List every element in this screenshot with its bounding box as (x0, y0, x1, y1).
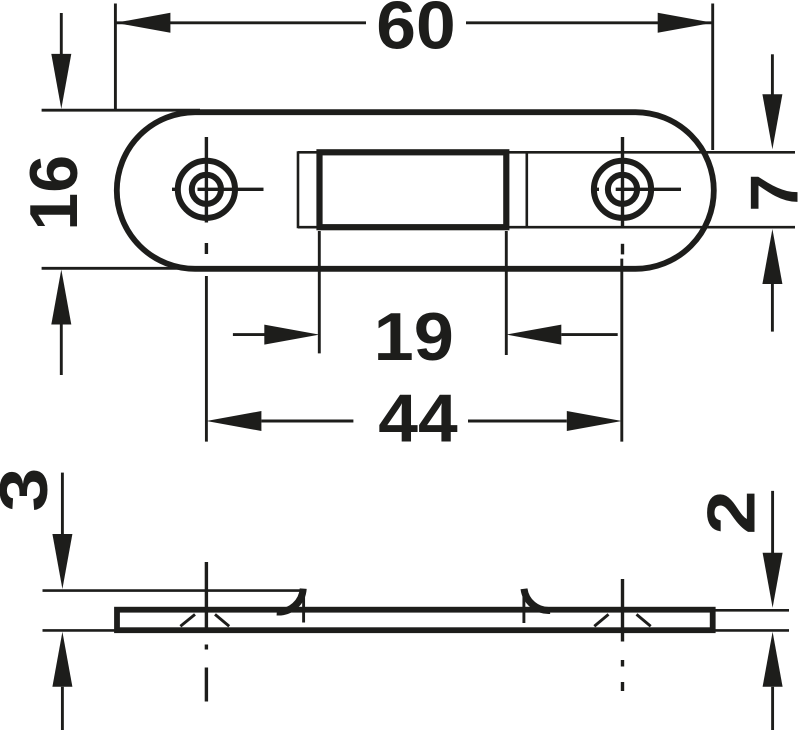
svg-text:44: 44 (378, 380, 458, 456)
svg-text:2: 2 (693, 490, 769, 534)
svg-text:60: 60 (376, 0, 455, 63)
svg-text:19: 19 (374, 299, 454, 375)
svg-text:3: 3 (0, 468, 61, 512)
svg-text:16: 16 (16, 155, 92, 231)
svg-text:7: 7 (736, 174, 800, 212)
